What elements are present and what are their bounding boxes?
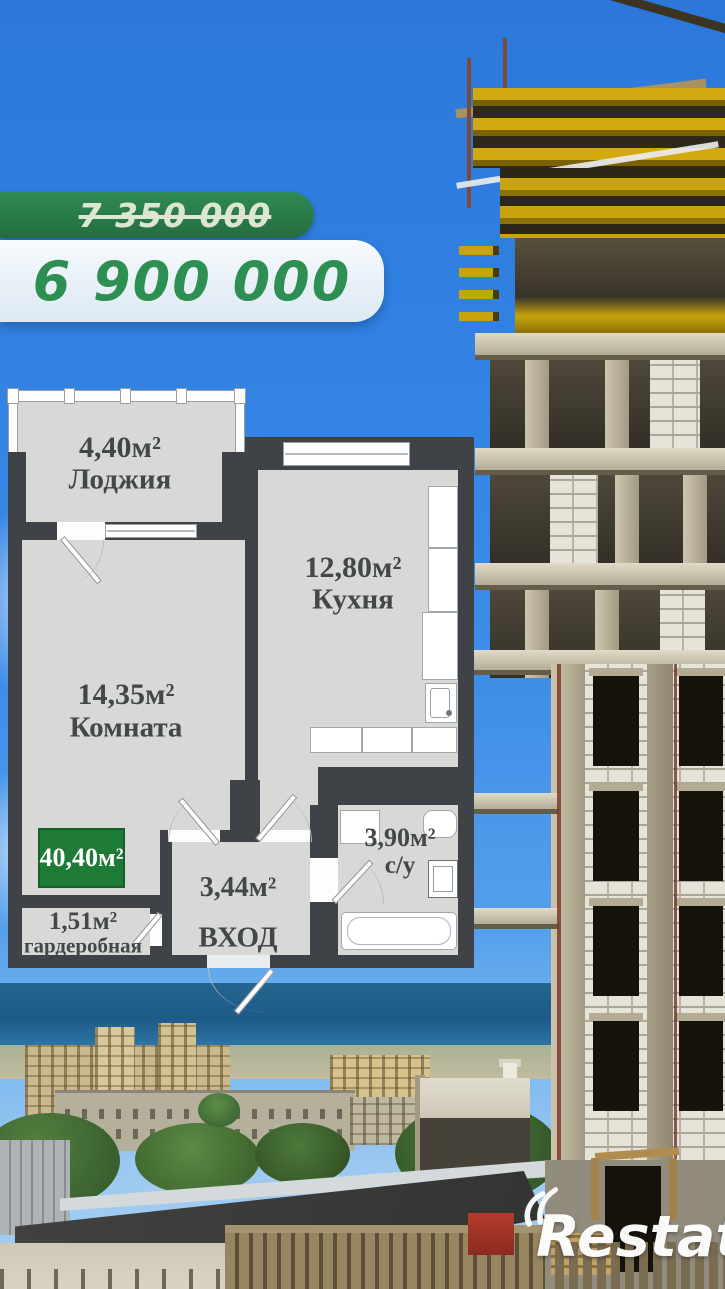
lintel <box>675 668 725 676</box>
window-opening <box>593 1021 639 1111</box>
floor-plan: 4,40м² Лоджия 14,35м² Комната 12,80м² Ку… <box>8 390 474 968</box>
bathroom-sink <box>428 860 458 898</box>
lintel <box>589 668 643 676</box>
construction-building-photo <box>455 0 725 1289</box>
yellow-formwork <box>500 168 725 238</box>
kitchen-counter <box>428 548 458 612</box>
block-wall <box>650 360 700 448</box>
floor-slab <box>475 563 725 590</box>
wardrobe-name-label: гардеробная <box>24 934 142 959</box>
wardrobe-area-label: 1,51м² <box>49 908 117 936</box>
beam-end <box>459 246 499 255</box>
room-area-label: 14,35м² <box>78 678 175 712</box>
block-wall <box>550 475 598 563</box>
beam-end <box>459 268 499 277</box>
red-pipe <box>557 664 561 1160</box>
trees <box>255 1123 350 1185</box>
lintel <box>589 783 643 791</box>
concrete-column <box>605 360 629 448</box>
new-price-banner: 6 900 000 <box>0 240 384 322</box>
hall-name-label: ВХОД <box>198 922 277 955</box>
window-opening <box>593 676 639 766</box>
yellow-formwork <box>473 88 725 168</box>
wall <box>458 437 474 968</box>
kitchen-counter <box>362 727 412 753</box>
lintel <box>589 898 643 906</box>
timber-beam <box>577 0 725 39</box>
sink-basin <box>433 866 453 892</box>
glazing-post <box>234 388 246 404</box>
glazing-post <box>176 388 187 404</box>
window-opening <box>679 791 723 881</box>
loggia-name-label: Лоджия <box>69 464 172 497</box>
concrete-column <box>647 664 673 1160</box>
window-opening <box>679 1021 723 1111</box>
watermark-logo: Restate <box>520 1194 725 1286</box>
trees <box>135 1123 260 1195</box>
red-pipe <box>674 664 677 1160</box>
room-name-label: Комната <box>70 712 183 745</box>
wall <box>8 895 168 908</box>
window-opening <box>593 791 639 881</box>
metal-fence <box>0 1140 70 1235</box>
bathtub-basin <box>347 917 451 945</box>
glazing-post <box>120 388 131 404</box>
tree <box>198 1093 240 1127</box>
formwork-underside <box>515 238 725 333</box>
balcony-slab <box>463 908 559 929</box>
window-opening <box>593 906 639 996</box>
lintel <box>675 783 725 791</box>
beam-end <box>459 312 499 321</box>
new-price-label: 6 900 000 <box>33 250 352 313</box>
concrete-column <box>525 360 549 448</box>
total-area-badge: 40,40м² <box>38 828 125 888</box>
kitchen-sink <box>425 683 457 723</box>
lintel <box>675 898 725 906</box>
listing-image: 4,40м² Лоджия 14,35м² Комната 12,80м² Ку… <box>0 0 725 1289</box>
floor-slab <box>475 333 725 360</box>
kitchen-counter <box>412 727 457 753</box>
fence-posts <box>0 1269 230 1289</box>
lintel <box>675 1013 725 1021</box>
bathroom-name-label: с/у <box>385 852 416 880</box>
bathtub <box>341 912 457 950</box>
kitchen-area-label: 12,80м² <box>305 551 402 585</box>
hall-area-label: 3,44м² <box>200 872 276 904</box>
window-opening <box>679 676 723 766</box>
glazing-post <box>64 388 75 404</box>
lintel <box>589 1013 643 1021</box>
sink-drain <box>446 710 452 716</box>
old-price-banner: 7 350 000 <box>0 192 314 238</box>
wall <box>245 455 258 780</box>
old-price-label: 7 350 000 <box>79 196 272 235</box>
floor-slab <box>475 448 725 475</box>
watermark-brand-label: Restate <box>536 1204 725 1270</box>
entrance-opening <box>207 955 270 968</box>
glazing-post <box>7 388 19 404</box>
wall <box>160 830 172 968</box>
beam-end <box>459 290 499 299</box>
wall <box>230 780 260 842</box>
window-mullion <box>285 453 408 455</box>
kitchen-counter <box>422 612 458 680</box>
concrete-column <box>615 475 639 563</box>
wall <box>318 767 474 805</box>
balcony-slab <box>463 793 559 814</box>
wall <box>8 452 26 522</box>
door-opening <box>310 858 338 902</box>
window-opening <box>679 906 723 996</box>
kitchen-counter <box>310 727 362 753</box>
bathroom-area-label: 3,90м² <box>364 823 435 853</box>
loggia-area-label: 4,40м² <box>79 431 161 465</box>
window-mullion <box>107 530 195 532</box>
concrete-column <box>683 475 707 563</box>
total-area-label: 40,40м² <box>40 843 124 873</box>
wall <box>222 452 245 522</box>
kitchen-name-label: Кухня <box>312 584 394 617</box>
kitchen-counter <box>428 486 458 548</box>
